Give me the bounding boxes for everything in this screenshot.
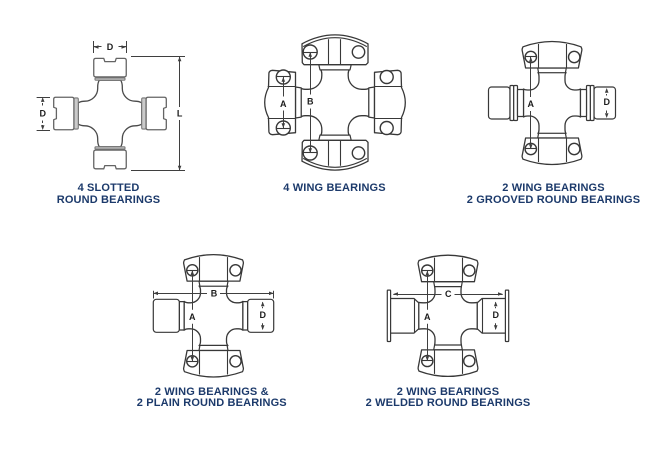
- svg-text:D: D: [107, 42, 114, 52]
- svg-text:A: A: [189, 312, 196, 322]
- svg-text:A: A: [528, 99, 535, 109]
- svg-text:D: D: [492, 310, 499, 320]
- svg-text:B: B: [307, 97, 314, 107]
- svg-text:A: A: [424, 312, 431, 322]
- svg-text:D: D: [259, 310, 266, 320]
- svg-text:L: L: [177, 109, 183, 119]
- svg-text:B: B: [211, 289, 218, 299]
- svg-text:C: C: [445, 289, 452, 299]
- svg-text:D: D: [603, 97, 610, 107]
- svg-text:D: D: [39, 109, 46, 119]
- svg-text:A: A: [280, 99, 287, 109]
